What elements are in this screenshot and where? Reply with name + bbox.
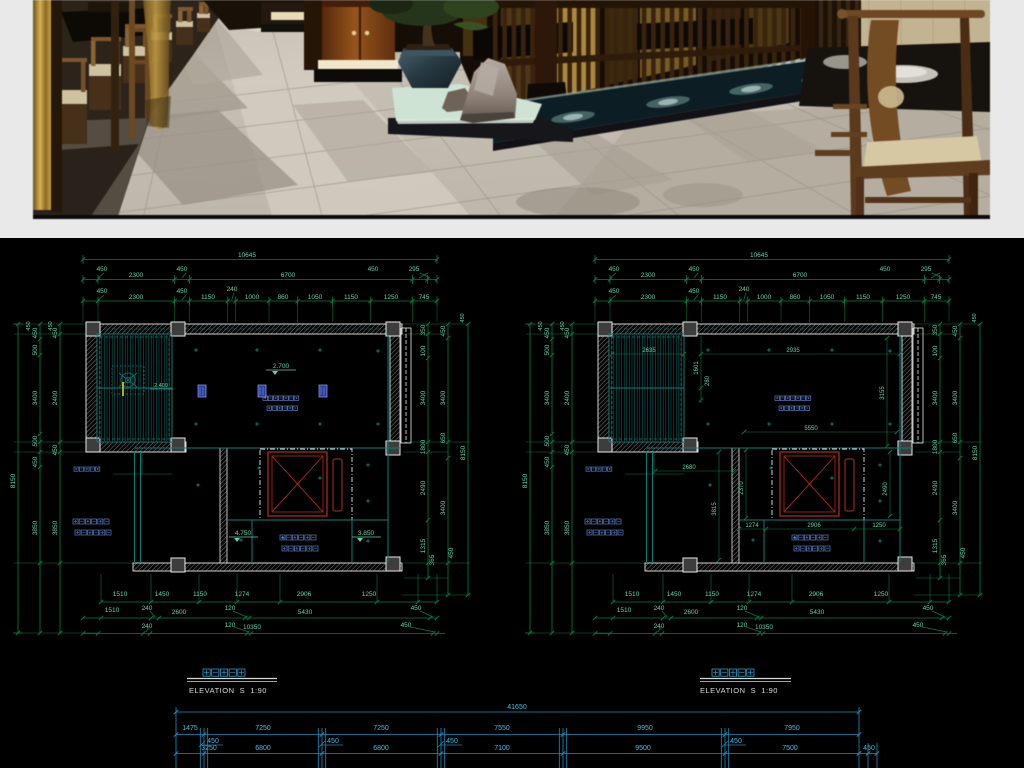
svg-text:1274: 1274 bbox=[745, 523, 759, 529]
svg-text:1601: 1601 bbox=[694, 361, 700, 375]
svg-text:1315: 1315 bbox=[420, 538, 427, 553]
svg-text:450: 450 bbox=[52, 444, 59, 455]
svg-text:5430: 5430 bbox=[298, 609, 313, 616]
svg-text:1150: 1150 bbox=[201, 294, 215, 301]
svg-text:7950: 7950 bbox=[784, 725, 800, 732]
svg-text:240: 240 bbox=[654, 605, 665, 612]
svg-text:450: 450 bbox=[538, 321, 544, 330]
svg-text:3.850: 3.850 bbox=[358, 530, 375, 537]
svg-text:2400: 2400 bbox=[52, 390, 59, 405]
svg-text:2300: 2300 bbox=[641, 272, 656, 279]
svg-text:450: 450 bbox=[368, 266, 379, 273]
svg-text:6700: 6700 bbox=[281, 272, 296, 279]
svg-text:10645: 10645 bbox=[750, 252, 768, 259]
svg-text:7250: 7250 bbox=[373, 725, 389, 732]
svg-text:450: 450 bbox=[544, 456, 551, 467]
svg-text:8150: 8150 bbox=[972, 445, 979, 460]
svg-text:1000: 1000 bbox=[245, 294, 260, 301]
svg-text:2600: 2600 bbox=[684, 609, 699, 616]
svg-text:1510: 1510 bbox=[113, 591, 128, 598]
svg-text:860: 860 bbox=[790, 294, 801, 301]
svg-text:3815: 3815 bbox=[712, 502, 718, 516]
svg-text:450: 450 bbox=[689, 288, 700, 295]
svg-text:240: 240 bbox=[142, 605, 153, 612]
svg-text:450: 450 bbox=[177, 288, 188, 295]
svg-text:2906: 2906 bbox=[297, 591, 312, 598]
svg-text:3400: 3400 bbox=[952, 500, 959, 515]
svg-text:3400: 3400 bbox=[420, 390, 427, 405]
svg-text:1000: 1000 bbox=[757, 294, 772, 301]
svg-text:1150: 1150 bbox=[193, 591, 207, 598]
svg-text:41650: 41650 bbox=[507, 704, 527, 711]
svg-text:1475: 1475 bbox=[182, 725, 198, 732]
svg-text:1510: 1510 bbox=[625, 591, 640, 598]
svg-text:5430: 5430 bbox=[810, 609, 825, 616]
svg-text:450: 450 bbox=[448, 547, 455, 558]
svg-text:8150: 8150 bbox=[460, 445, 467, 460]
svg-text:3850: 3850 bbox=[52, 520, 59, 535]
svg-text:3400: 3400 bbox=[440, 390, 447, 405]
svg-text:3400: 3400 bbox=[544, 390, 551, 405]
svg-text:1250: 1250 bbox=[384, 294, 399, 301]
svg-text:2400: 2400 bbox=[564, 390, 571, 405]
svg-text:3155: 3155 bbox=[880, 386, 886, 400]
svg-text:1250: 1250 bbox=[874, 591, 889, 598]
svg-text:ELEVATION S 1:90: ELEVATION S 1:90 bbox=[189, 686, 267, 695]
svg-text:2490: 2490 bbox=[883, 482, 889, 496]
svg-text:1510: 1510 bbox=[617, 607, 632, 614]
svg-text:450: 450 bbox=[564, 444, 571, 455]
svg-text:745: 745 bbox=[419, 294, 430, 301]
svg-text:3400: 3400 bbox=[932, 390, 939, 405]
svg-text:240: 240 bbox=[227, 286, 238, 293]
svg-text:365: 365 bbox=[429, 554, 436, 565]
svg-text:500: 500 bbox=[544, 435, 551, 446]
svg-text:1050: 1050 bbox=[308, 294, 323, 301]
svg-text:10350: 10350 bbox=[755, 624, 773, 631]
svg-text:450: 450 bbox=[97, 288, 108, 295]
svg-text:450: 450 bbox=[327, 738, 339, 745]
svg-text:295: 295 bbox=[921, 266, 932, 273]
svg-text:450: 450 bbox=[32, 456, 39, 467]
svg-text:450: 450 bbox=[972, 313, 978, 322]
svg-text:1274: 1274 bbox=[747, 591, 762, 598]
svg-text:450: 450 bbox=[913, 622, 924, 629]
svg-text:2.700: 2.700 bbox=[273, 363, 290, 370]
svg-text:120: 120 bbox=[225, 605, 236, 612]
svg-text:2300: 2300 bbox=[641, 294, 656, 301]
svg-text:4.750: 4.750 bbox=[235, 530, 252, 537]
svg-text:2300: 2300 bbox=[129, 272, 144, 279]
svg-text:8150: 8150 bbox=[522, 473, 529, 488]
svg-text:1050: 1050 bbox=[820, 294, 835, 301]
svg-text:1510: 1510 bbox=[105, 607, 120, 614]
svg-text:450: 450 bbox=[32, 327, 39, 338]
svg-text:7550: 7550 bbox=[494, 725, 510, 732]
svg-text:450: 450 bbox=[689, 266, 700, 273]
svg-text:3400: 3400 bbox=[440, 500, 447, 515]
svg-text:8150: 8150 bbox=[10, 473, 17, 488]
svg-text:1450: 1450 bbox=[667, 591, 682, 598]
svg-text:3850: 3850 bbox=[564, 520, 571, 535]
svg-text:7100: 7100 bbox=[494, 745, 510, 752]
svg-text:745: 745 bbox=[931, 294, 942, 301]
svg-text:1274: 1274 bbox=[235, 591, 250, 598]
svg-text:7500: 7500 bbox=[782, 745, 798, 752]
svg-text:1150: 1150 bbox=[344, 294, 358, 301]
svg-text:1150: 1150 bbox=[856, 294, 870, 301]
svg-text:450: 450 bbox=[401, 622, 412, 629]
svg-text:365: 365 bbox=[941, 554, 948, 565]
svg-text:6800: 6800 bbox=[373, 745, 389, 752]
svg-text:10350: 10350 bbox=[243, 624, 261, 631]
svg-text:2490: 2490 bbox=[932, 480, 939, 495]
svg-text:120: 120 bbox=[737, 622, 748, 629]
svg-text:450: 450 bbox=[560, 321, 566, 330]
svg-text:3850: 3850 bbox=[32, 520, 39, 535]
svg-text:295: 295 bbox=[409, 266, 420, 273]
svg-text:450: 450 bbox=[460, 313, 466, 322]
svg-text:2490: 2490 bbox=[420, 480, 427, 495]
svg-text:240: 240 bbox=[654, 623, 665, 630]
svg-text:860: 860 bbox=[278, 294, 289, 301]
svg-text:450: 450 bbox=[952, 325, 959, 336]
svg-text:2906: 2906 bbox=[807, 523, 821, 529]
svg-text:2370: 2370 bbox=[739, 481, 745, 495]
svg-text:240: 240 bbox=[142, 623, 153, 630]
svg-text:280: 280 bbox=[705, 375, 711, 386]
svg-text:100: 100 bbox=[932, 345, 939, 356]
svg-text:2906: 2906 bbox=[809, 591, 824, 598]
svg-text:2.400: 2.400 bbox=[154, 383, 168, 389]
svg-text:1250: 1250 bbox=[872, 523, 886, 529]
svg-text:5550: 5550 bbox=[804, 426, 818, 432]
svg-text:450: 450 bbox=[177, 266, 188, 273]
svg-text:500: 500 bbox=[32, 435, 39, 446]
svg-text:100: 100 bbox=[420, 345, 427, 356]
svg-text:1250: 1250 bbox=[362, 591, 377, 598]
svg-text:1450: 1450 bbox=[155, 591, 170, 598]
svg-text:1250: 1250 bbox=[896, 294, 911, 301]
svg-text:10645: 10645 bbox=[238, 252, 256, 259]
svg-text:3250: 3250 bbox=[201, 745, 217, 752]
svg-text:6800: 6800 bbox=[255, 745, 271, 752]
svg-text:450: 450 bbox=[446, 738, 458, 745]
svg-text:120: 120 bbox=[737, 605, 748, 612]
svg-text:1150: 1150 bbox=[713, 294, 727, 301]
svg-text:6700: 6700 bbox=[793, 272, 808, 279]
svg-text:500: 500 bbox=[32, 344, 39, 355]
svg-text:240: 240 bbox=[739, 286, 750, 293]
svg-text:450: 450 bbox=[440, 325, 447, 336]
svg-text:2635: 2635 bbox=[642, 348, 656, 354]
svg-text:2300: 2300 bbox=[129, 294, 144, 301]
svg-text:500: 500 bbox=[544, 344, 551, 355]
svg-text:2935: 2935 bbox=[786, 348, 800, 354]
svg-text:450: 450 bbox=[609, 288, 620, 295]
svg-text:450: 450 bbox=[26, 321, 32, 330]
svg-text:120: 120 bbox=[225, 622, 236, 629]
svg-text:450: 450 bbox=[544, 327, 551, 338]
svg-text:450: 450 bbox=[730, 738, 742, 745]
svg-text:450: 450 bbox=[863, 745, 875, 752]
svg-text:2600: 2600 bbox=[172, 609, 187, 616]
svg-text:450: 450 bbox=[97, 266, 108, 273]
svg-text:450: 450 bbox=[609, 266, 620, 273]
svg-text:450: 450 bbox=[48, 321, 54, 330]
svg-text:3850: 3850 bbox=[544, 520, 551, 535]
svg-text:9950: 9950 bbox=[637, 725, 653, 732]
svg-text:1315: 1315 bbox=[932, 538, 939, 553]
svg-text:450: 450 bbox=[880, 266, 891, 273]
svg-text:2680: 2680 bbox=[682, 465, 696, 471]
svg-text:450: 450 bbox=[960, 547, 967, 558]
svg-text:3400: 3400 bbox=[32, 390, 39, 405]
svg-text:7250: 7250 bbox=[255, 725, 271, 732]
svg-text:1150: 1150 bbox=[705, 591, 719, 598]
svg-text:ELEVATION S 1:90: ELEVATION S 1:90 bbox=[700, 686, 778, 695]
svg-text:3400: 3400 bbox=[952, 390, 959, 405]
svg-text:450: 450 bbox=[207, 738, 219, 745]
svg-text:9500: 9500 bbox=[635, 745, 651, 752]
